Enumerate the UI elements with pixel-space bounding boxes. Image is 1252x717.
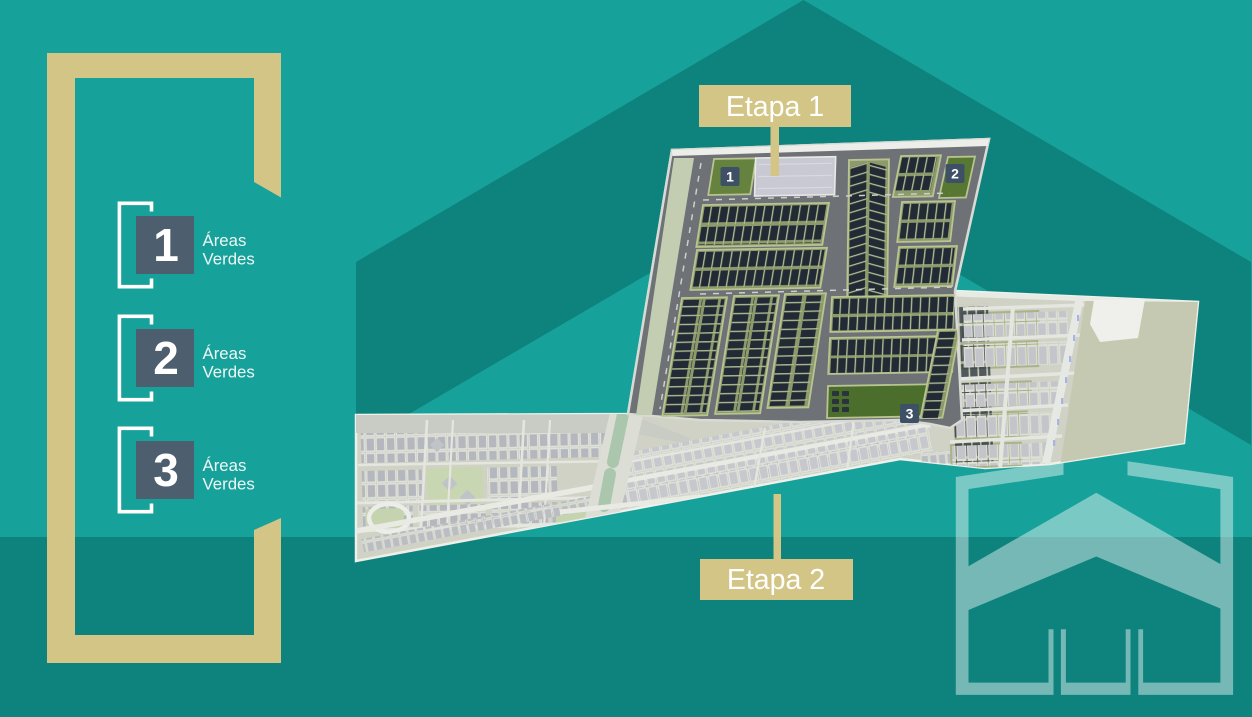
svg-text:3: 3 <box>906 406 914 422</box>
svg-text:2: 2 <box>153 332 179 384</box>
svg-text:2: 2 <box>951 166 959 182</box>
svg-text:Etapa 1: Etapa 1 <box>726 91 824 123</box>
svg-text:1: 1 <box>153 219 179 271</box>
svg-text:Verdes: Verdes <box>203 362 255 381</box>
svg-text:1: 1 <box>726 169 734 185</box>
svg-text:Áreas: Áreas <box>203 456 247 475</box>
svg-text:Verdes: Verdes <box>203 474 255 493</box>
svg-text:3: 3 <box>153 444 179 496</box>
svg-text:Áreas: Áreas <box>203 231 247 250</box>
svg-text:Etapa 2: Etapa 2 <box>727 564 825 596</box>
svg-text:Áreas: Áreas <box>203 344 247 363</box>
svg-text:Verdes: Verdes <box>203 249 255 268</box>
